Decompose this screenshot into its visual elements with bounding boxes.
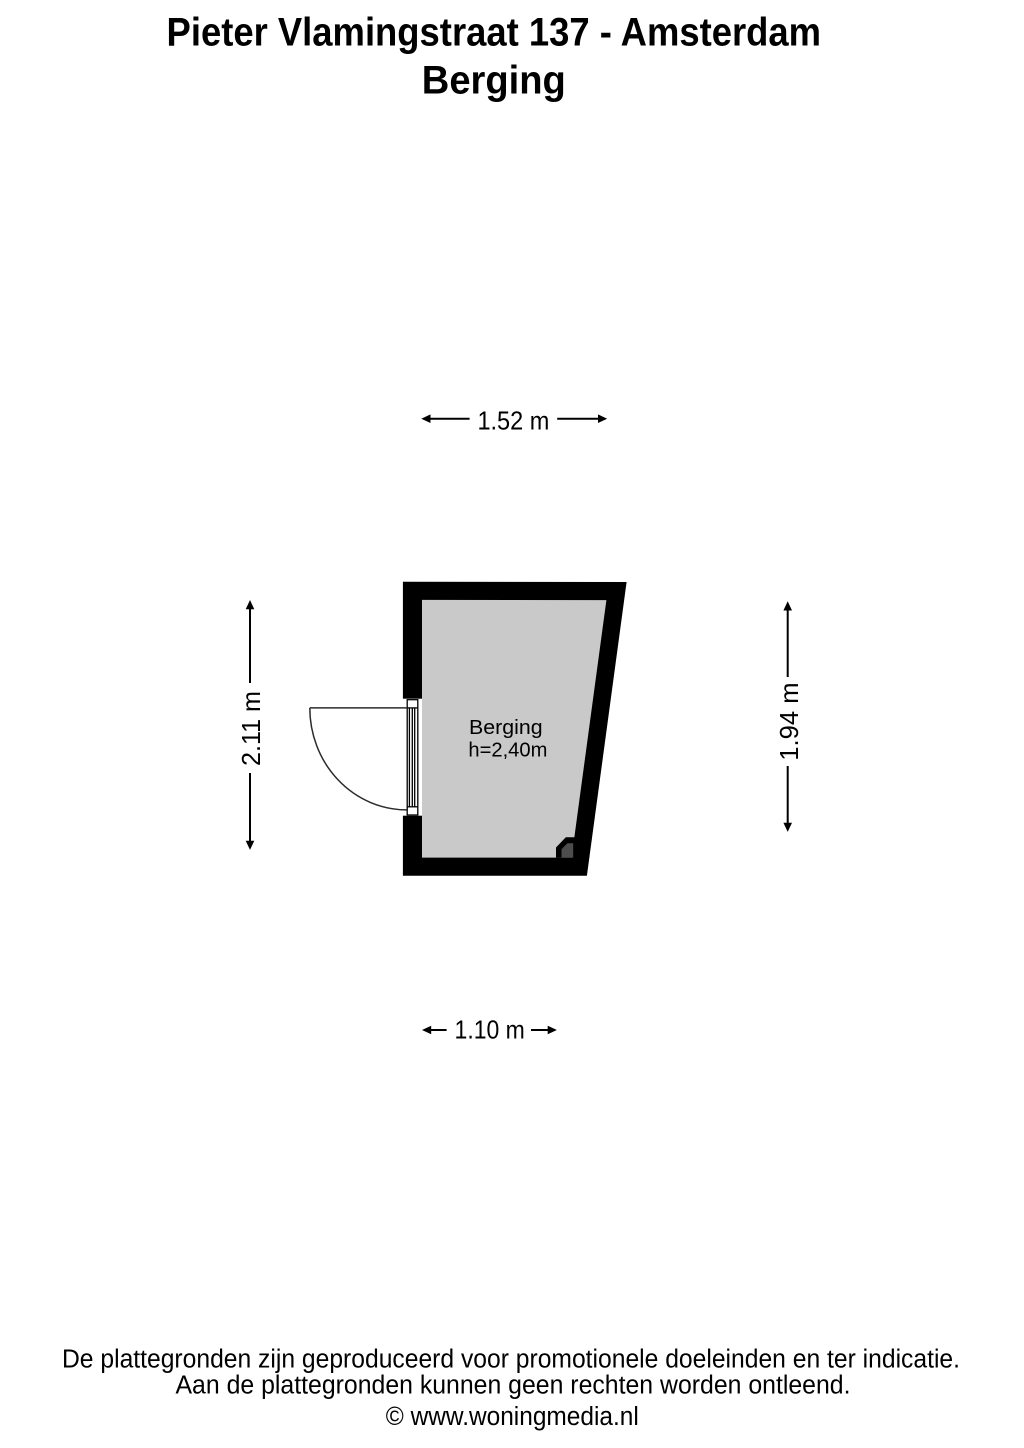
svg-text:© www.woningmedia.nl: © www.woningmedia.nl [386,1403,639,1431]
svg-text:1.94 m: 1.94 m [774,682,804,760]
svg-text:1.52 m: 1.52 m [477,405,549,435]
svg-text:Pieter Vlamingstraat 137 - Ams: Pieter Vlamingstraat 137 - Amsterdam [167,10,822,54]
svg-text:Berging: Berging [422,58,566,102]
svg-text:2.11 m: 2.11 m [236,691,266,766]
svg-text:Aan de plattegronden kunnen ge: Aan de plattegronden kunnen geen rechten… [176,1372,851,1400]
svg-text:De plattegronden zijn geproduc: De plattegronden zijn geproduceerd voor … [62,1345,960,1373]
svg-text:Berging: Berging [469,716,543,739]
svg-text:1.10 m: 1.10 m [455,1014,525,1044]
svg-text:h=2,40m: h=2,40m [468,738,547,761]
